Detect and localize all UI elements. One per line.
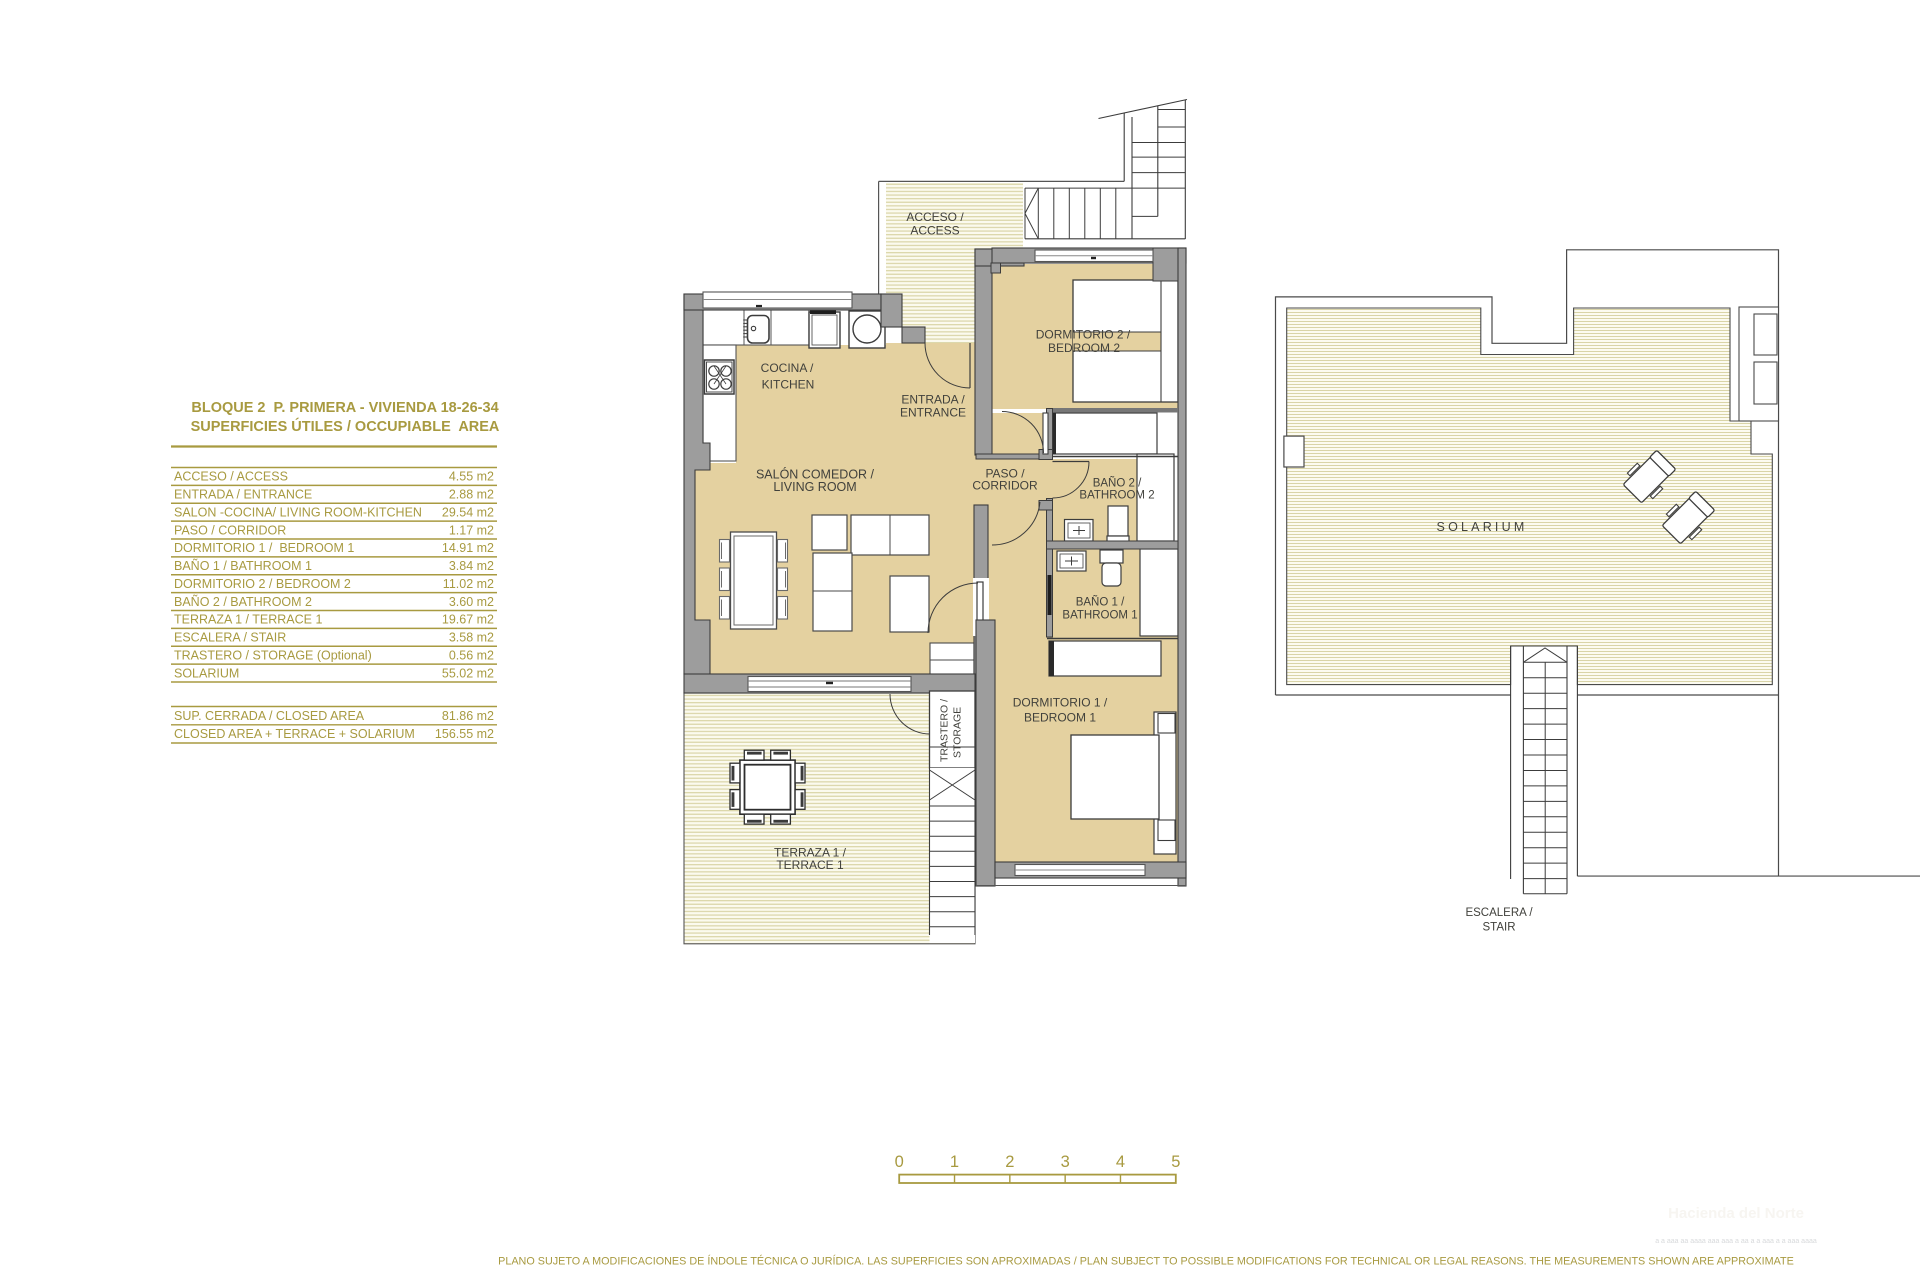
- svg-text:PLANO SUJETO A MODIFICACIONES: PLANO SUJETO A MODIFICACIONES DE ÍNDOLE …: [498, 1255, 1794, 1268]
- svg-text:BAÑO 1 / BATHROOM 1: BAÑO 1 / BATHROOM 1: [174, 559, 312, 573]
- svg-text:ENTRADA / ENTRANCE: ENTRADA / ENTRANCE: [174, 488, 312, 502]
- svg-text:CORRIDOR: CORRIDOR: [972, 479, 1038, 493]
- svg-text:a a aaa aa aaaa aaa aaa a: a a aaa aa aaaa aaa aaa a aa a a aaa a a…: [1655, 1238, 1817, 1245]
- svg-text:2: 2: [1005, 1153, 1014, 1171]
- svg-text:BAÑO 2 /: BAÑO 2 /: [1093, 476, 1142, 489]
- svg-text:55.02 m2: 55.02 m2: [442, 666, 494, 680]
- svg-text:BEDROOM 1: BEDROOM 1: [1024, 711, 1096, 725]
- svg-text:CLOSED AREA + TERRACE + SOLARI: CLOSED AREA + TERRACE + SOLARIUM: [174, 727, 415, 741]
- svg-text:29.54 m2: 29.54 m2: [442, 505, 494, 519]
- svg-text:BAÑO 1 /: BAÑO 1 /: [1076, 596, 1125, 609]
- svg-text:11.02 m2: 11.02 m2: [443, 577, 494, 591]
- svg-text:DORMITORIO 1 / BEDROOM 1: DORMITORIO 1 / BEDROOM 1: [174, 541, 354, 555]
- svg-text:19.67 m2: 19.67 m2: [442, 613, 494, 627]
- svg-text:4.55 m2: 4.55 m2: [449, 470, 494, 484]
- svg-text:BATHROOM 2: BATHROOM 2: [1079, 489, 1154, 501]
- svg-text:SALON -COCINA/ LIVING ROOM-KIT: SALON -COCINA/ LIVING ROOM-KITCHEN: [174, 505, 422, 519]
- svg-text:ACCESO /: ACCESO /: [906, 210, 964, 224]
- svg-text:ACCESO / ACCESS: ACCESO / ACCESS: [174, 470, 288, 484]
- svg-text:PASO / CORRIDOR: PASO / CORRIDOR: [174, 523, 286, 537]
- svg-text:81.86 m2: 81.86 m2: [442, 709, 494, 723]
- svg-text:SOLARIUM: SOLARIUM: [1437, 520, 1528, 534]
- svg-text:SUPERFICIES ÚTILES / OCCUPIABL: SUPERFICIES ÚTILES / OCCUPIABLE AREA: [191, 417, 500, 435]
- svg-text:KITCHEN: KITCHEN: [762, 378, 815, 392]
- svg-text:BLOQUE 2 P. PRIMERA - VIVIEND: BLOQUE 2 P. PRIMERA - VIVIENDA 18-26-34: [191, 400, 498, 416]
- svg-text:TERRAZA 1 / TERRACE 1: TERRAZA 1 / TERRACE 1: [174, 613, 322, 627]
- svg-text:0.56 m2: 0.56 m2: [449, 648, 494, 662]
- svg-text:BAÑO 2 / BATHROOM 2: BAÑO 2 / BATHROOM 2: [174, 595, 312, 609]
- svg-text:ESCALERA / STAIR: ESCALERA / STAIR: [174, 631, 286, 645]
- svg-text:SUP. CERRADA / CLOSED AREA: SUP. CERRADA / CLOSED AREA: [174, 709, 365, 723]
- svg-text:ENTRANCE: ENTRANCE: [900, 406, 966, 420]
- svg-text:TRASTERO / STORAGE (Optional): TRASTERO / STORAGE (Optional): [174, 648, 372, 662]
- svg-text:BATHROOM 1: BATHROOM 1: [1062, 610, 1137, 622]
- svg-text:SOLARIUM: SOLARIUM: [174, 666, 239, 680]
- svg-text:DORMITORIO 1 /: DORMITORIO 1 /: [1013, 696, 1108, 710]
- svg-text:ENTRADA /: ENTRADA /: [901, 392, 965, 406]
- svg-text:TERRACE 1: TERRACE 1: [776, 858, 844, 872]
- svg-text:Hacienda del Norte: Hacienda del Norte: [1668, 1205, 1804, 1222]
- svg-text:BEDROOM 2: BEDROOM 2: [1048, 341, 1120, 355]
- svg-text:COCINA /: COCINA /: [761, 361, 814, 375]
- svg-text:DORMITORIO 2 /: DORMITORIO 2 /: [1036, 328, 1131, 342]
- svg-text:2.88 m2: 2.88 m2: [449, 488, 494, 502]
- svg-text:3.58 m2: 3.58 m2: [449, 631, 494, 645]
- svg-text:1: 1: [950, 1153, 959, 1171]
- svg-text:156.55 m2: 156.55 m2: [435, 727, 494, 741]
- svg-text:5: 5: [1171, 1153, 1180, 1171]
- svg-text:DORMITORIO 2 / BEDROOM 2: DORMITORIO 2 / BEDROOM 2: [174, 577, 351, 591]
- svg-text:4: 4: [1116, 1153, 1125, 1171]
- svg-text:3: 3: [1061, 1153, 1070, 1171]
- svg-text:14.91 m2: 14.91 m2: [442, 541, 494, 555]
- svg-text:TRASTERO /: TRASTERO /: [939, 699, 951, 762]
- svg-text:ACCESS: ACCESS: [910, 224, 959, 238]
- svg-text:LIVING ROOM: LIVING ROOM: [773, 480, 856, 494]
- svg-text:3.84 m2: 3.84 m2: [449, 559, 494, 573]
- svg-text:ESCALERA /: ESCALERA /: [1465, 907, 1533, 919]
- svg-text:1.17 m2: 1.17 m2: [449, 523, 494, 537]
- svg-text:3.60 m2: 3.60 m2: [449, 595, 494, 609]
- svg-text:STAIR: STAIR: [1482, 922, 1515, 934]
- svg-text:STORAGE: STORAGE: [952, 707, 964, 758]
- svg-text:0: 0: [895, 1153, 904, 1171]
